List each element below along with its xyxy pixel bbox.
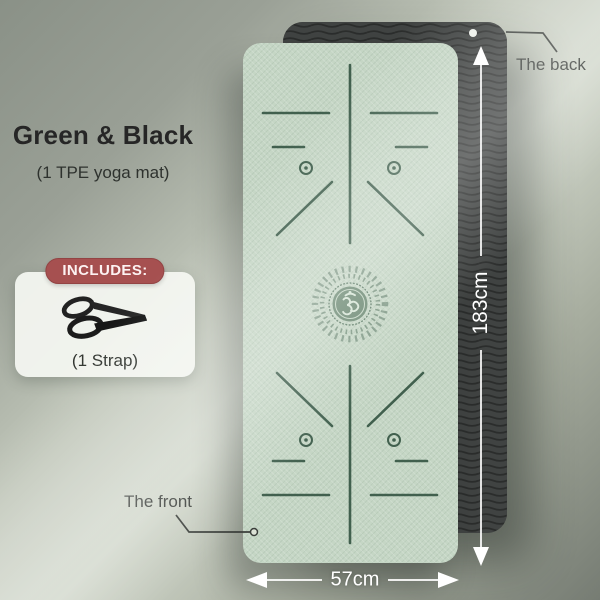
page-title: Green & Black (0, 120, 206, 151)
width-dimension-label: 57cm (331, 569, 380, 592)
front-label: The front (124, 492, 192, 512)
includes-item-label: (1 Strap) (15, 351, 195, 371)
strap-icon (30, 288, 180, 346)
arrow-down-icon (473, 547, 489, 566)
yoga-mat-front (243, 43, 458, 563)
includes-card: INCLUDES: (1 Strap) (15, 272, 195, 377)
mat-alignment-lines (243, 43, 458, 563)
arrow-right-icon (438, 572, 459, 588)
arrow-left-icon (246, 572, 267, 588)
product-photo: Green & Black (1 TPE yoga mat) INCLUDES:… (0, 0, 600, 600)
mandala (315, 269, 385, 339)
includes-badge: INCLUDES: (45, 258, 164, 284)
product-title-block: Green & Black (1 TPE yoga mat) (0, 120, 206, 183)
page-subtitle: (1 TPE yoga mat) (0, 163, 206, 183)
back-label: The back (516, 55, 586, 75)
back-callout-line (506, 32, 557, 52)
length-dimension-label: 183cm (469, 271, 493, 334)
